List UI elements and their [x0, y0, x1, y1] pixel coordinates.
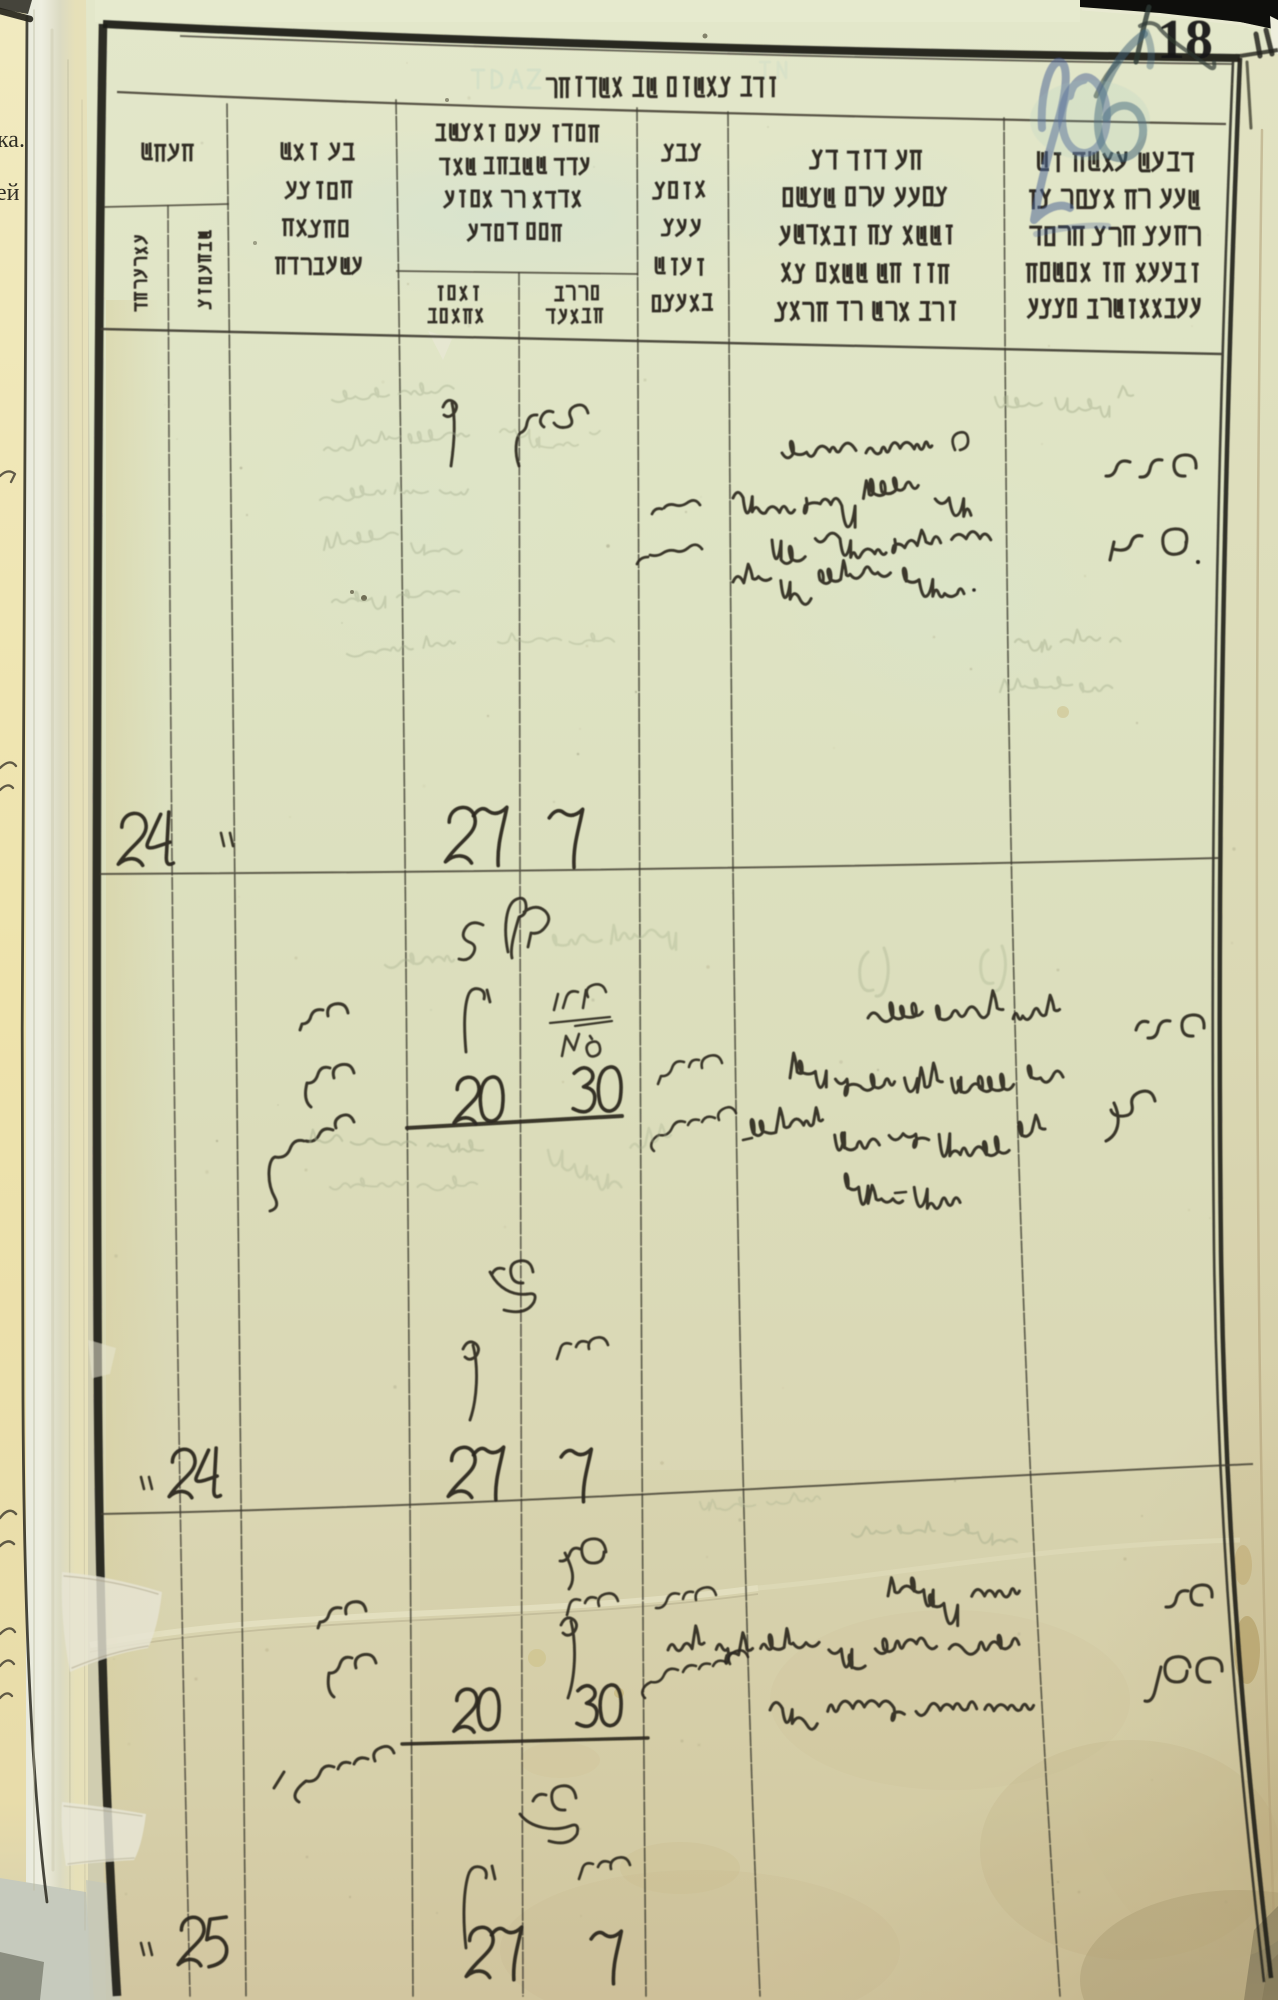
svg-text:ка.: ка. [0, 127, 25, 153]
svg-text:ей: ей [0, 180, 20, 206]
